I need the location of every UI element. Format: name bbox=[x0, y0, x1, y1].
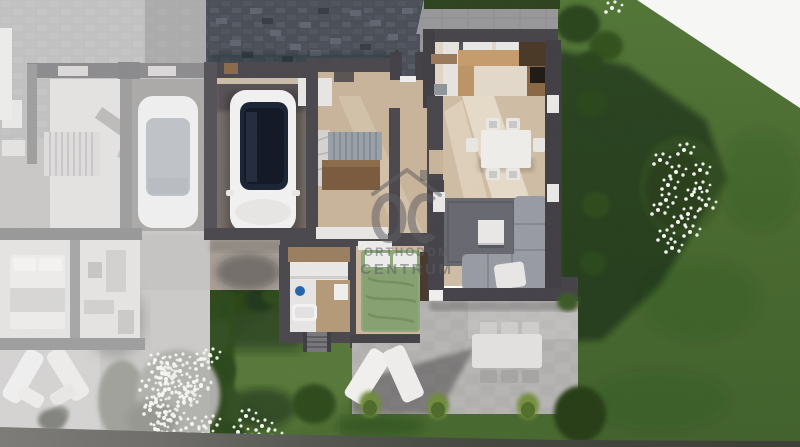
svg-text:CENTRUM: CENTRUM bbox=[360, 261, 453, 278]
svg-text:ORTHODOM: ORTHODOM bbox=[364, 247, 450, 259]
